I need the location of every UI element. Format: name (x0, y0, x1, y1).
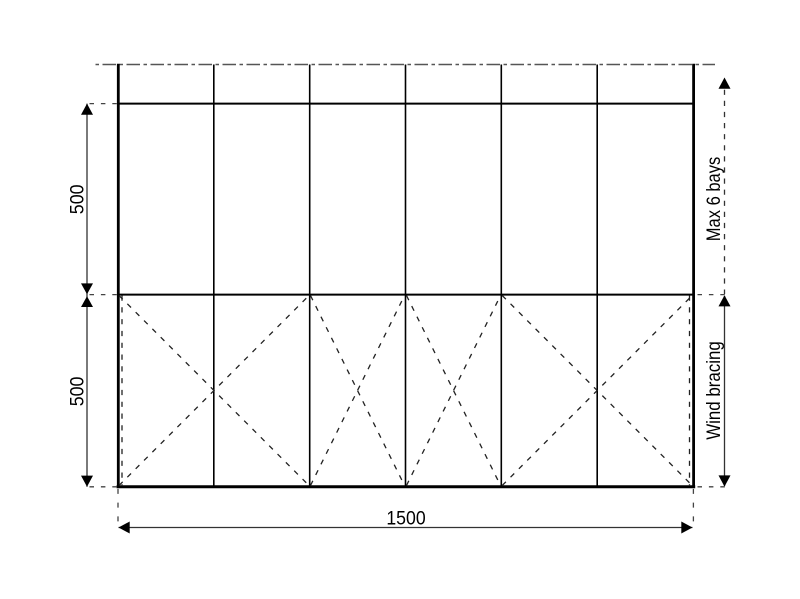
svg-text:Wind bracing: Wind bracing (703, 341, 724, 440)
svg-text:500: 500 (66, 184, 88, 214)
svg-text:500: 500 (66, 377, 88, 407)
svg-text:1500: 1500 (386, 507, 425, 529)
svg-text:Max 6 bays: Max 6 bays (703, 157, 724, 242)
